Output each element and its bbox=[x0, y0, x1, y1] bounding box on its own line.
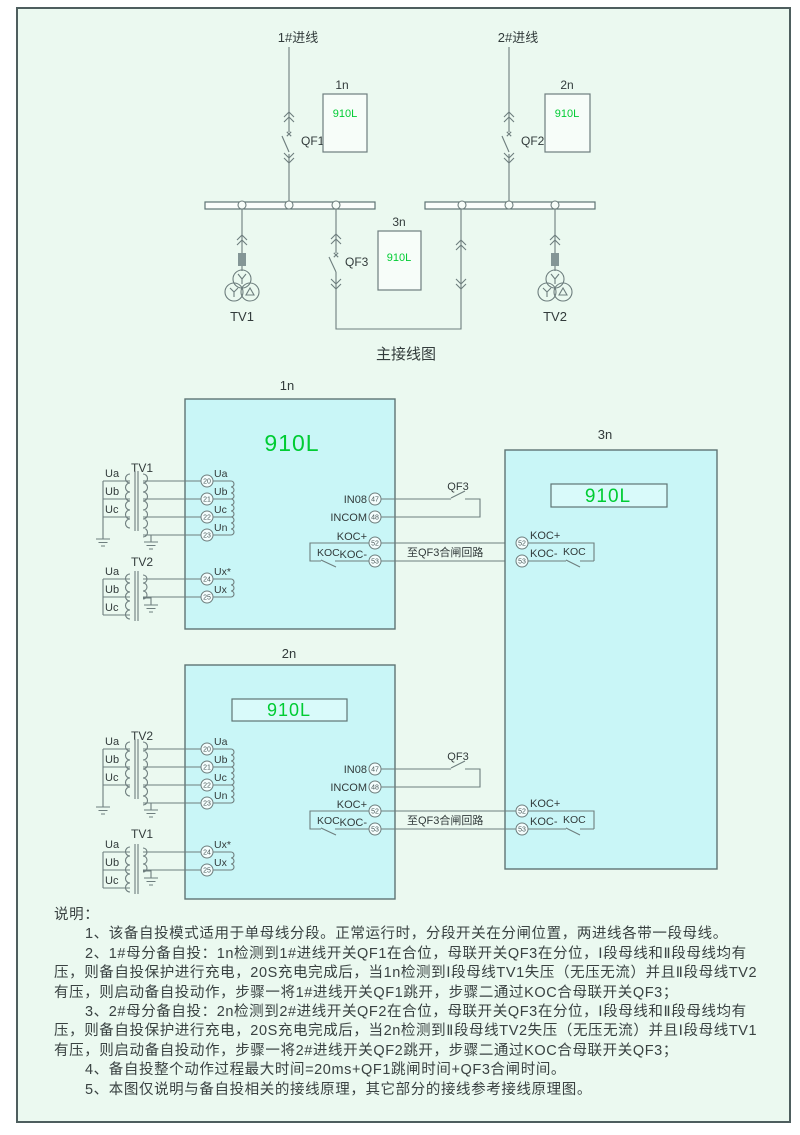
in08-label: IN08 bbox=[344, 494, 367, 506]
qf3-contact-label: QF3 bbox=[447, 481, 468, 493]
bus-node bbox=[285, 201, 293, 209]
tv-name: TV1 bbox=[131, 827, 153, 841]
koc-plus-label: KOC+ bbox=[337, 531, 367, 543]
koc-minus-label: KOC- bbox=[530, 548, 558, 560]
breaker-x-icon bbox=[507, 132, 511, 136]
terminal-label: Un bbox=[214, 790, 228, 802]
terminal-number: 23 bbox=[203, 801, 211, 808]
phase-label: Ub bbox=[105, 857, 119, 869]
terminal-label: Uc bbox=[214, 504, 227, 516]
fuse-icon bbox=[551, 253, 559, 266]
device-1n-model: 910L bbox=[333, 108, 357, 120]
terminal-label: Ux* bbox=[214, 566, 231, 578]
phase-label: Ua bbox=[105, 839, 120, 851]
incom-label: INCOM bbox=[330, 512, 367, 524]
terminal-number: 48 bbox=[371, 515, 379, 522]
terminal-label: Ux* bbox=[214, 839, 231, 851]
device-2n-tag: 2n bbox=[282, 646, 296, 661]
koc-minus-label: KOC- bbox=[340, 549, 368, 561]
qf3-aux-contact bbox=[381, 761, 480, 787]
terminal-label: Ub bbox=[214, 754, 228, 766]
tv2-label: TV2 bbox=[543, 309, 567, 324]
terminal-number: 52 bbox=[518, 809, 526, 816]
terminal-number: 47 bbox=[371, 767, 379, 774]
feeder1-label: 1#进线 bbox=[278, 30, 318, 45]
device-1n-model: 910L bbox=[264, 430, 319, 456]
breaker-blade-qf3 bbox=[329, 257, 336, 272]
device-1n-tag: 1n bbox=[280, 378, 294, 393]
terminal-number: 53 bbox=[518, 827, 526, 834]
note-item-5: 5、本图仅说明与备自投相关的接线原理，其它部分的接线参考接线原理图。 bbox=[54, 1081, 772, 1100]
terminal-number: 24 bbox=[203, 850, 211, 857]
koc-minus-label: KOC- bbox=[340, 817, 368, 829]
device-3n-tag: 3n bbox=[598, 427, 612, 442]
device-1n-detail: 1n 910L TV1 Ua Ub Uc TV2 Ua Ub Uc bbox=[96, 378, 516, 629]
koc-plus-label: KOC+ bbox=[530, 530, 560, 542]
notes-heading: 说明： bbox=[54, 906, 772, 925]
wire-destination-note: 至QF3合闸回路 bbox=[407, 545, 483, 559]
terminal-label: Ux bbox=[214, 857, 228, 869]
device-1n-box bbox=[323, 94, 367, 152]
wiring-diagram: 1#进线 QF1 1n 910L 2#进线 QF2 2n 910L bbox=[18, 9, 789, 906]
note-item-2: 2、1#母分备自投：1n检测到1#进线开关QF1在合位，母联开关QF3在分位，Ⅰ… bbox=[54, 945, 772, 1003]
koc-contact-label: KOC bbox=[563, 814, 586, 826]
phase-label: Ua bbox=[105, 736, 120, 748]
terminal-number: 53 bbox=[518, 559, 526, 566]
phase-label: Uc bbox=[105, 602, 119, 614]
ground-icon bbox=[144, 602, 158, 612]
phase-label: Ua bbox=[105, 468, 120, 480]
device-3n-model: 910L bbox=[387, 252, 411, 264]
terminal-number: 47 bbox=[371, 497, 379, 504]
terminal-label: Ux bbox=[214, 584, 228, 596]
bus-node bbox=[458, 201, 466, 209]
phase-label: Ub bbox=[105, 584, 119, 596]
voltage-transformer-icon bbox=[225, 270, 259, 301]
terminal-number: 53 bbox=[371, 559, 379, 566]
phase-label: Uc bbox=[105, 772, 119, 784]
main-diagram: 1#进线 QF1 1n 910L 2#进线 QF2 2n 910L bbox=[205, 30, 595, 363]
terminal-number: 24 bbox=[203, 577, 211, 584]
terminal-number: 22 bbox=[203, 515, 211, 522]
in08-label: IN08 bbox=[344, 764, 367, 776]
tv-name: TV2 bbox=[131, 555, 153, 569]
terminal-number: 25 bbox=[203, 595, 211, 602]
terminal-number: 52 bbox=[518, 541, 526, 548]
ground-icon bbox=[96, 804, 110, 814]
device-2n-box bbox=[545, 94, 590, 152]
breaker-blade-qf2 bbox=[502, 136, 509, 152]
terminal-number: 21 bbox=[203, 765, 211, 772]
incom-label: INCOM bbox=[330, 782, 367, 794]
phase-label: Ub bbox=[105, 486, 119, 498]
bus-node bbox=[551, 201, 559, 209]
terminal-number: 48 bbox=[371, 785, 379, 792]
phase-label: Ub bbox=[105, 754, 119, 766]
phase-label: Ua bbox=[105, 566, 120, 578]
device-2n-model: 910L bbox=[267, 700, 311, 720]
device-3n-model: 910L bbox=[585, 486, 631, 507]
tv1-label: TV1 bbox=[230, 309, 254, 324]
breaker-x-icon bbox=[334, 253, 338, 257]
koc-contact-label: KOC bbox=[563, 546, 586, 558]
ground-icon bbox=[96, 536, 110, 546]
terminal-number: 23 bbox=[203, 533, 211, 540]
wire-destination-note: 至QF3合闸回路 bbox=[407, 813, 483, 827]
koc-plus-label: KOC+ bbox=[530, 798, 560, 810]
terminal-label: Ub bbox=[214, 486, 228, 498]
device-2n-model: 910L bbox=[555, 108, 579, 120]
tv-name: TV2 bbox=[131, 729, 153, 743]
bus-node bbox=[332, 201, 340, 209]
terminal-label: Uc bbox=[214, 772, 227, 784]
terminal-number: 52 bbox=[371, 809, 379, 816]
terminal-number: 52 bbox=[371, 541, 379, 548]
koc-contact-label: KOC bbox=[317, 815, 340, 827]
phase-label: Uc bbox=[105, 504, 119, 516]
ground-icon bbox=[144, 539, 158, 549]
device-1n-tag: 1n bbox=[335, 78, 348, 92]
terminal-number: 21 bbox=[203, 497, 211, 504]
notes-section: 说明： 1、该备自投模式适用于单母线分段。正常运行时，分段开关在分闸位置，两进线… bbox=[54, 906, 772, 1100]
terminal-number: 25 bbox=[203, 868, 211, 875]
tv-name: TV1 bbox=[131, 461, 153, 475]
terminal-label: Un bbox=[214, 522, 228, 534]
schematic-page: 1#进线 QF1 1n 910L 2#进线 QF2 2n 910L bbox=[0, 0, 800, 1135]
koc-minus-label: KOC- bbox=[530, 816, 558, 828]
terminal-number: 20 bbox=[203, 747, 211, 754]
qf2-label: QF2 bbox=[521, 134, 545, 148]
voltage-transformer-icon bbox=[538, 270, 572, 301]
bus-node bbox=[505, 201, 513, 209]
note-item-1: 1、该备自投模式适用于单母线分段。正常运行时，分段开关在分闸位置，两进线各带一段… bbox=[54, 925, 772, 944]
terminal-label: Ua bbox=[214, 468, 228, 480]
qf3-label: QF3 bbox=[345, 255, 369, 269]
device-2n-tag: 2n bbox=[560, 78, 573, 92]
terminal-number: 53 bbox=[371, 827, 379, 834]
note-item-4: 4、备自投整个动作过程最大时间=20ms+QF1跳闸时间+QF3合闸时间。 bbox=[54, 1061, 772, 1080]
device-3n-tag: 3n bbox=[392, 215, 405, 229]
fuse-icon bbox=[238, 253, 246, 266]
device-2n-detail: 2n 910L TV2 Ua Ub Uc TV1 Ua Ub Uc bbox=[96, 646, 516, 899]
bus-node bbox=[238, 201, 246, 209]
breaker-blade-qf1 bbox=[282, 136, 289, 152]
terminal-label: Ua bbox=[214, 736, 228, 748]
note-item-3: 3、2#母分备自投：2n检测到2#进线开关QF2在合位，母联开关QF3在分位，Ⅰ… bbox=[54, 1003, 772, 1061]
qf3-aux-contact bbox=[381, 491, 480, 517]
terminal-number: 22 bbox=[203, 783, 211, 790]
drawing-frame: 1#进线 QF1 1n 910L 2#进线 QF2 2n 910L bbox=[16, 7, 791, 1123]
qf1-label: QF1 bbox=[301, 134, 325, 148]
phase-label: Uc bbox=[105, 875, 119, 887]
device-3n-detail: 3n 910L 52 53 KOC+ KOC- KOC 52 53 KOC+ K… bbox=[505, 427, 717, 869]
main-diagram-title: 主接线图 bbox=[376, 346, 436, 363]
koc-plus-label: KOC+ bbox=[337, 799, 367, 811]
feeder2-label: 2#进线 bbox=[498, 30, 538, 45]
ground-icon bbox=[144, 875, 158, 885]
breaker-x-icon bbox=[287, 132, 291, 136]
qf3-contact-label: QF3 bbox=[447, 751, 468, 763]
koc-contact-label: KOC bbox=[317, 547, 340, 559]
ground-icon bbox=[144, 807, 158, 817]
terminal-number: 20 bbox=[203, 479, 211, 486]
